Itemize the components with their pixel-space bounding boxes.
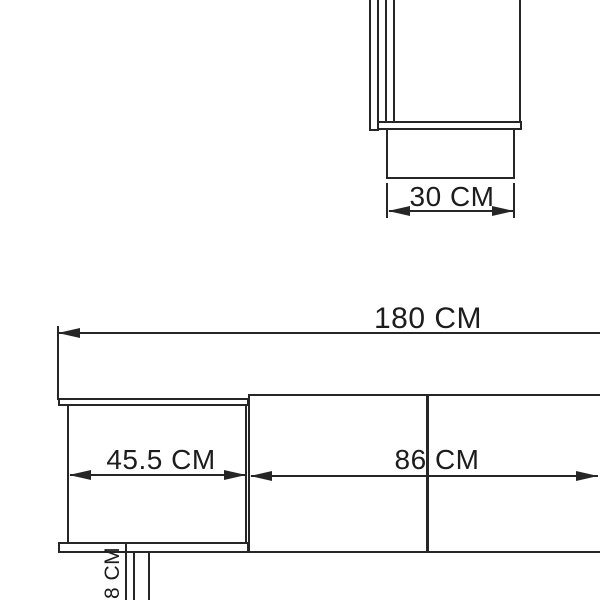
dim-180-line [58,332,600,334]
front-leg-left-edge [133,553,135,600]
dim-18-label: 18 CM [101,547,125,600]
dim-45-label: 45.5 CM [106,444,215,476]
dim-45-line [70,474,246,476]
dim-180-ext-line-left [57,326,59,400]
side-carcass-inner-line [393,0,395,123]
dim-30-label: 30 CM [410,181,495,213]
side-plinth [386,128,515,179]
dim-86-label: 86 CM [395,444,480,476]
dim-18-ext-line [125,542,127,600]
dim-86-arrow-left-icon [250,471,272,481]
dim-30-arrow-right-icon [492,206,514,216]
dim-86-arrow-right-icon [576,471,598,481]
dim-30-arrow-left-icon [388,206,410,216]
front-top-panel [58,398,249,406]
front-bottom-panel [58,542,249,553]
front-leg-right-edge [148,553,150,600]
side-back-edge-line [519,0,521,123]
furniture-dimension-diagram: 30 CM 180 CM 45.5 CM 86 CM 18 CM [0,0,600,600]
side-door-panel [369,0,379,131]
dim-180-label: 180 CM [374,302,482,336]
dim-45-arrow-right-icon [224,470,246,480]
dim-86-line [251,475,598,477]
dim-45-arrow-left-icon [69,470,91,480]
dim-180-arrow-left-icon [58,328,80,338]
side-carcass-front-line [385,0,387,123]
